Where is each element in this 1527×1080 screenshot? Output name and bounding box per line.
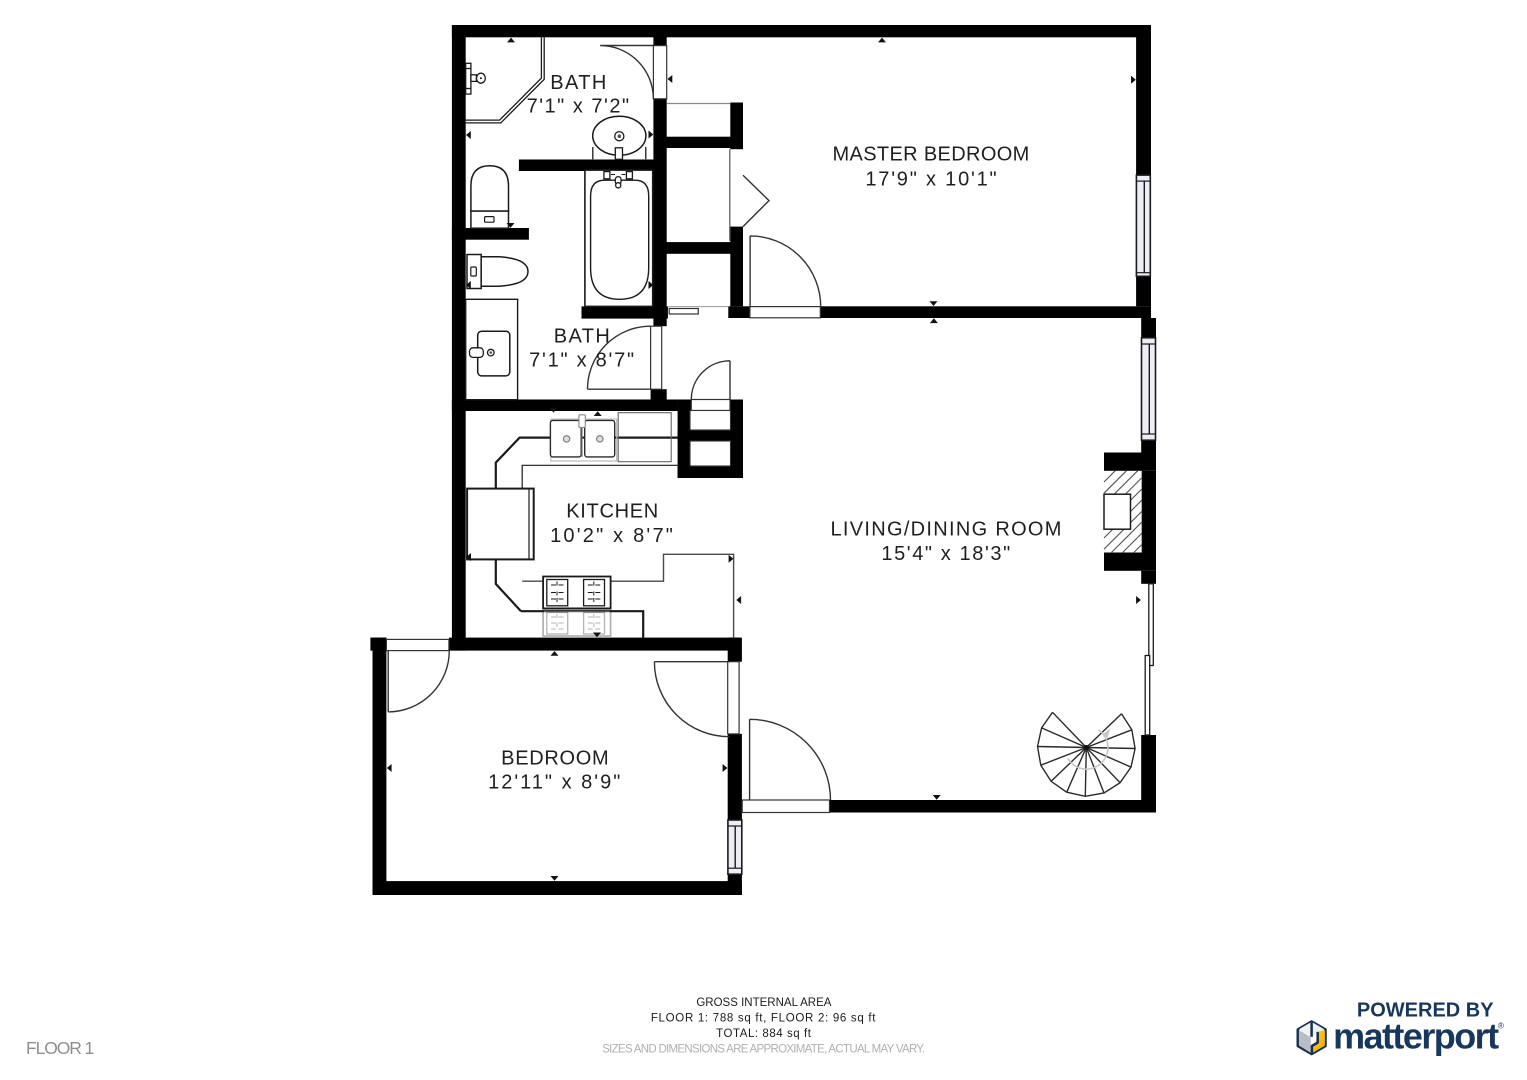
svg-text:12'11" x 8'9": 12'11" x 8'9" <box>488 772 622 794</box>
svg-text:BATH: BATH <box>550 72 607 94</box>
svg-text:SIZES AND DIMENSIONS ARE APPRO: SIZES AND DIMENSIONS ARE APPROXIMATE, AC… <box>602 1043 925 1055</box>
svg-text:FLOOR 1: 788 sq ft, FLOOR 2: 9: FLOOR 1: 788 sq ft, FLOOR 2: 96 sq ft <box>651 1013 876 1025</box>
svg-text:BATH: BATH <box>554 325 611 347</box>
svg-text:LIVING/DINING ROOM: LIVING/DINING ROOM <box>830 519 1062 541</box>
svg-text:BEDROOM: BEDROOM <box>501 747 609 769</box>
svg-text:15'4" x 18'3": 15'4" x 18'3" <box>881 543 1012 565</box>
svg-text:7'1" x 7'2": 7'1" x 7'2" <box>527 96 631 118</box>
svg-text:GROSS INTERNAL AREA: GROSS INTERNAL AREA <box>696 997 831 1009</box>
svg-text:TOTAL: 884 sq ft: TOTAL: 884 sq ft <box>716 1028 812 1040</box>
svg-text:®: ® <box>1498 1021 1505 1031</box>
svg-text:MASTER BEDROOM: MASTER BEDROOM <box>833 143 1030 165</box>
svg-text:10'2" x 8'7": 10'2" x 8'7" <box>550 525 675 547</box>
svg-text:matterport: matterport <box>1333 1016 1499 1057</box>
svg-text:KITCHEN: KITCHEN <box>566 501 659 523</box>
svg-text:7'1" x 8'7": 7'1" x 8'7" <box>529 350 636 372</box>
svg-text:FLOOR 1: FLOOR 1 <box>26 1038 94 1058</box>
svg-text:17'9" x 10'1": 17'9" x 10'1" <box>865 168 998 190</box>
